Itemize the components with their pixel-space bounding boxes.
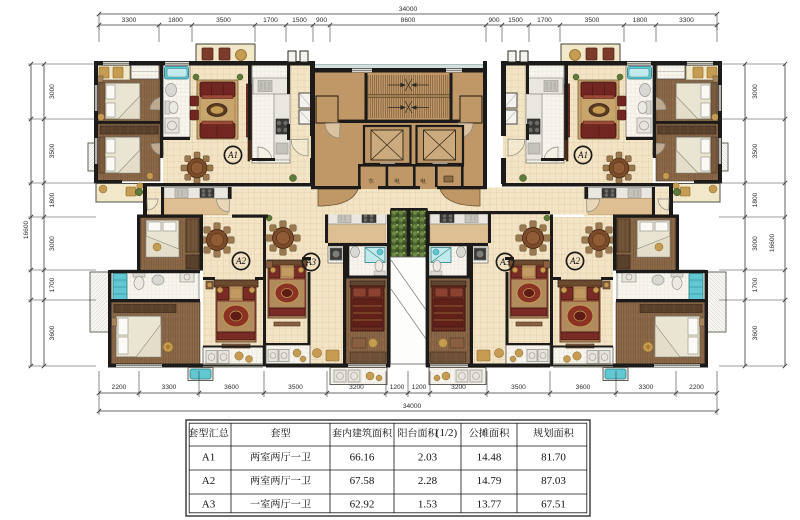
svg-text:3300: 3300 — [122, 17, 137, 24]
svg-text:(1/2): (1/2) — [436, 427, 458, 439]
svg-text:1800: 1800 — [633, 17, 648, 24]
svg-text:A1: A1 — [202, 452, 215, 464]
svg-text:3600: 3600 — [49, 325, 56, 340]
svg-text:3600: 3600 — [752, 325, 759, 340]
svg-text:3300: 3300 — [639, 384, 654, 391]
svg-text:14.79: 14.79 — [477, 475, 502, 487]
svg-text:2.28: 2.28 — [418, 475, 438, 487]
svg-text:1200: 1200 — [390, 384, 405, 391]
svg-text:3000: 3000 — [49, 84, 56, 99]
svg-text:3500: 3500 — [752, 143, 759, 158]
svg-text:2.03: 2.03 — [418, 452, 438, 464]
svg-text:3500: 3500 — [585, 17, 600, 24]
svg-text:A3: A3 — [305, 257, 316, 267]
svg-text:87.03: 87.03 — [541, 475, 566, 487]
svg-text:1500: 1500 — [508, 17, 523, 24]
svg-text:3500: 3500 — [511, 384, 526, 391]
svg-text:14.48: 14.48 — [477, 452, 502, 464]
svg-text:1700: 1700 — [537, 17, 552, 24]
svg-text:3200: 3200 — [451, 384, 466, 391]
svg-text:66.16: 66.16 — [350, 452, 375, 464]
svg-text:3500: 3500 — [49, 143, 56, 158]
svg-text:3600: 3600 — [224, 384, 239, 391]
svg-text:67.51: 67.51 — [541, 499, 566, 511]
svg-text:A2: A2 — [235, 256, 246, 266]
svg-text:16600: 16600 — [23, 221, 30, 240]
svg-text:3000: 3000 — [752, 236, 759, 251]
svg-text:1800: 1800 — [168, 17, 183, 24]
svg-text:16600: 16600 — [769, 234, 776, 253]
svg-text:A1: A1 — [577, 150, 588, 160]
svg-text:67.58: 67.58 — [350, 475, 375, 487]
svg-text:3000: 3000 — [752, 84, 759, 99]
svg-text:A3: A3 — [202, 499, 216, 511]
svg-text:3300: 3300 — [679, 17, 694, 24]
svg-text:1700: 1700 — [49, 277, 56, 292]
svg-text:A2: A2 — [569, 256, 580, 266]
svg-text:3600: 3600 — [576, 384, 591, 391]
svg-text:3200: 3200 — [349, 384, 364, 391]
svg-text:3500: 3500 — [216, 17, 231, 24]
svg-text:A2: A2 — [202, 475, 215, 487]
svg-text:A1: A1 — [227, 150, 238, 160]
svg-text:1.53: 1.53 — [418, 499, 438, 511]
svg-text:8600: 8600 — [401, 17, 416, 24]
svg-text:62.92: 62.92 — [350, 499, 375, 511]
svg-text:2200: 2200 — [689, 384, 704, 391]
svg-text:1800: 1800 — [49, 192, 56, 207]
svg-text:81.70: 81.70 — [541, 452, 566, 464]
svg-text:34000: 34000 — [399, 6, 418, 13]
svg-text:13.77: 13.77 — [477, 499, 502, 511]
svg-text:3500: 3500 — [288, 384, 303, 391]
svg-text:1500: 1500 — [292, 17, 307, 24]
svg-text:900: 900 — [488, 17, 499, 24]
svg-text:900: 900 — [316, 17, 327, 24]
svg-text:2200: 2200 — [112, 384, 127, 391]
svg-text:1200: 1200 — [412, 384, 427, 391]
svg-text:1800: 1800 — [752, 192, 759, 207]
svg-text:34000: 34000 — [403, 403, 422, 410]
svg-text:3300: 3300 — [162, 384, 177, 391]
svg-text:1700: 1700 — [752, 277, 759, 292]
svg-text:3000: 3000 — [49, 236, 56, 251]
svg-text:1700: 1700 — [263, 17, 278, 24]
svg-text:A3: A3 — [499, 257, 510, 267]
